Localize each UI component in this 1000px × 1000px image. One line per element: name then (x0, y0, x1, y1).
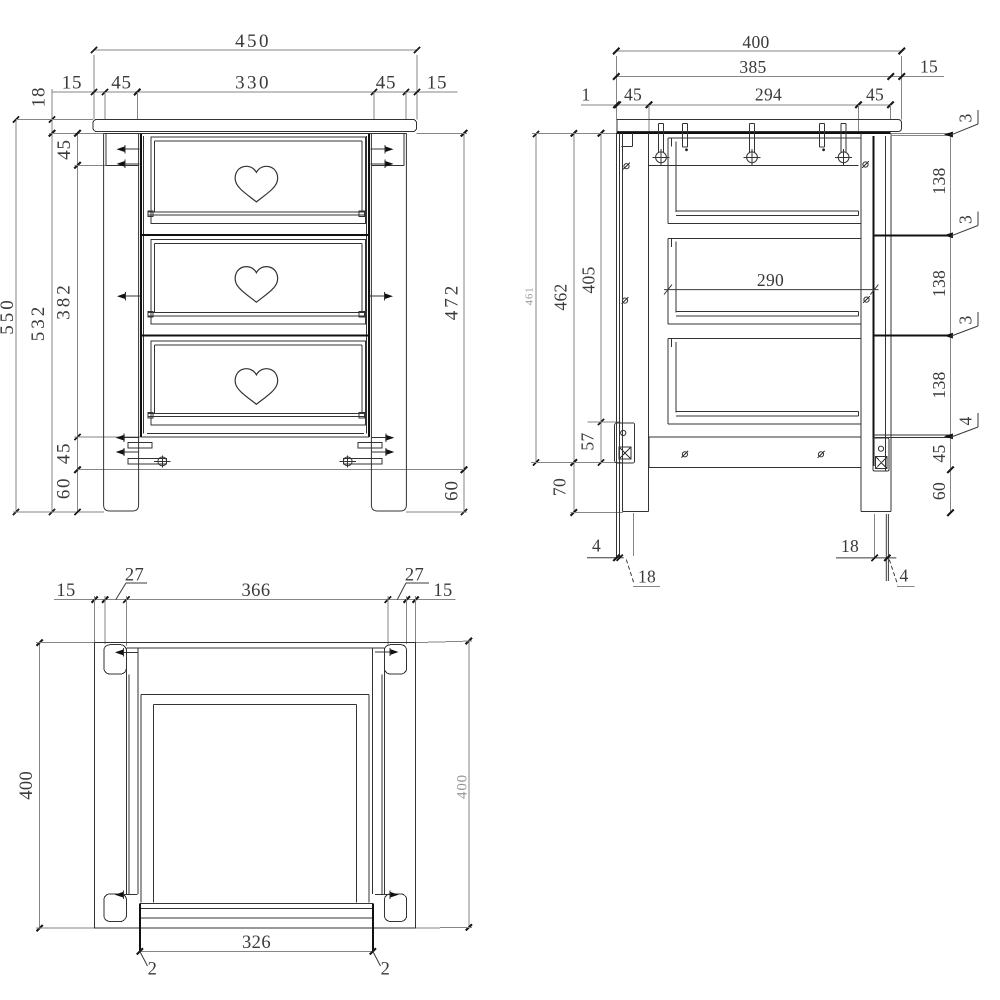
svg-text:3: 3 (956, 113, 976, 122)
svg-text:15: 15 (62, 72, 83, 93)
svg-text:472: 472 (441, 283, 462, 321)
svg-text:400: 400 (742, 32, 769, 52)
svg-text:4: 4 (956, 416, 976, 425)
svg-text:4: 4 (592, 536, 601, 556)
svg-text:57: 57 (578, 432, 598, 450)
svg-text:70: 70 (550, 478, 570, 496)
svg-text:400: 400 (17, 771, 37, 800)
svg-text:15: 15 (56, 581, 75, 601)
svg-text:294: 294 (755, 85, 782, 105)
svg-text:1: 1 (581, 85, 590, 105)
svg-text:138: 138 (929, 167, 949, 194)
svg-text:45: 45 (54, 139, 75, 160)
svg-text:15: 15 (433, 581, 452, 601)
svg-text:550: 550 (0, 297, 18, 335)
svg-text:405: 405 (579, 266, 599, 293)
svg-text:462: 462 (551, 283, 571, 310)
svg-text:385: 385 (739, 57, 766, 77)
svg-text:45: 45 (53, 442, 74, 464)
svg-text:382: 382 (53, 282, 74, 320)
svg-text:2: 2 (148, 959, 158, 979)
svg-text:60: 60 (929, 482, 949, 500)
svg-text:15: 15 (427, 72, 448, 93)
svg-text:3: 3 (956, 215, 976, 224)
svg-text:3: 3 (956, 315, 976, 324)
svg-text:400: 400 (454, 774, 470, 799)
svg-text:60: 60 (53, 477, 74, 499)
svg-text:330: 330 (235, 72, 271, 93)
svg-text:60: 60 (441, 480, 462, 501)
svg-text:18: 18 (841, 536, 859, 556)
svg-text:45: 45 (624, 85, 642, 105)
svg-text:18: 18 (28, 87, 49, 108)
svg-text:138: 138 (929, 371, 949, 398)
svg-text:290: 290 (757, 270, 784, 290)
svg-text:45: 45 (929, 444, 949, 462)
svg-text:2: 2 (381, 959, 391, 979)
svg-text:326: 326 (242, 933, 271, 953)
svg-text:27: 27 (125, 565, 144, 585)
svg-text:18: 18 (638, 567, 656, 587)
svg-text:532: 532 (28, 304, 49, 342)
svg-text:45: 45 (376, 72, 397, 93)
svg-text:366: 366 (242, 581, 271, 601)
svg-text:138: 138 (929, 270, 949, 297)
svg-text:27: 27 (405, 565, 424, 585)
svg-text:461: 461 (524, 287, 536, 306)
svg-text:45: 45 (866, 85, 884, 105)
svg-text:45: 45 (111, 72, 132, 93)
svg-text:4: 4 (899, 566, 908, 586)
svg-text:15: 15 (920, 57, 938, 77)
svg-text:450: 450 (235, 31, 271, 52)
